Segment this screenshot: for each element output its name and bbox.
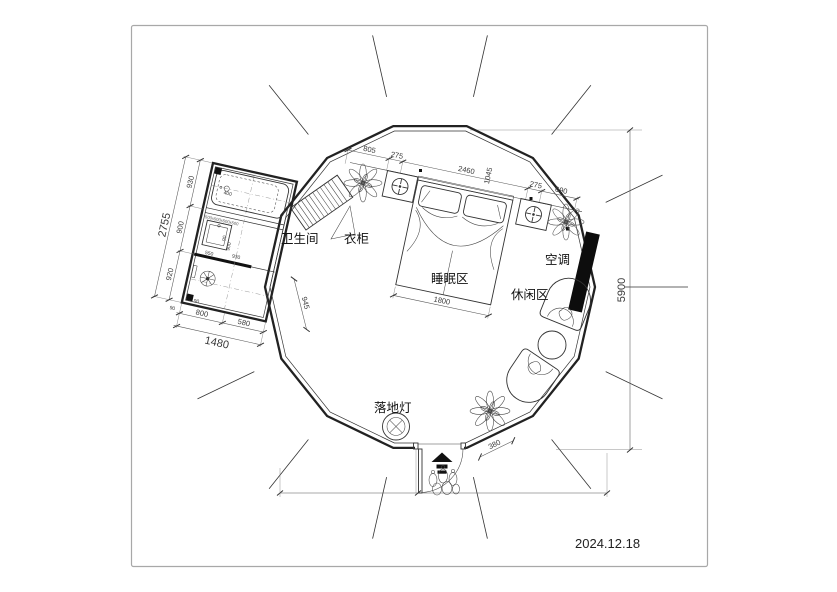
dim-inner-width: 930 — [231, 253, 241, 261]
ac-unit — [568, 231, 600, 312]
ac-label: 空调 — [545, 253, 570, 267]
pillow — [463, 195, 507, 224]
sleeping-area-label: 睡眠区 — [431, 272, 469, 286]
entry-arrow-icon — [432, 453, 453, 474]
door-leaf — [419, 449, 423, 493]
floor-plan-drawing: 5900 — [0, 0, 837, 592]
nightstand — [382, 171, 418, 203]
floor-drain — [199, 270, 217, 288]
floor-plan-page: 5900 — [0, 0, 837, 592]
dim-stub-inner: 90 — [221, 235, 228, 242]
dim-945: 945 — [300, 296, 312, 310]
roof-ray — [552, 85, 591, 134]
entrance: 380 — [414, 431, 518, 495]
dim-2460: 2460 — [457, 164, 475, 176]
room-inner-wall — [270, 131, 590, 443]
roof-ray — [373, 35, 387, 97]
pillow — [418, 185, 462, 214]
dim-5900: 5900 — [616, 278, 628, 302]
roof-ray — [373, 477, 387, 538]
column — [186, 294, 194, 302]
roof-ray — [606, 372, 663, 399]
dimension-overall-height: 5900 — [470, 128, 642, 453]
nightstand — [516, 199, 552, 231]
dim-1045: 1045 — [482, 167, 494, 185]
floor-lamp-symbol — [383, 413, 410, 440]
duvet-folds — [400, 206, 504, 304]
bathroom-label: 卫生间 — [281, 232, 319, 246]
drawing-date: 2024.12.18 — [575, 536, 640, 551]
room-outer-wall — [265, 126, 595, 448]
wardrobe-label: 衣柜 — [344, 231, 369, 246]
dim-1800: 1800 — [433, 294, 451, 306]
round-table — [538, 331, 566, 359]
dim-inner-height: 900 — [225, 242, 233, 252]
roof-ray — [552, 440, 591, 489]
roof-ray — [473, 35, 487, 97]
dim-tub: 400 — [223, 190, 233, 198]
leisure-area-label: 休闲区 — [511, 288, 549, 302]
roof-ray — [473, 477, 487, 538]
roof-ray — [269, 440, 308, 489]
armchair — [498, 347, 561, 411]
wall-socket — [419, 169, 422, 172]
dim-2755: 2755 — [156, 212, 173, 239]
entrance-plants — [429, 465, 460, 495]
floor-lamp-label: 落地灯 — [374, 401, 412, 415]
wall-socket — [530, 197, 533, 200]
column — [214, 167, 222, 175]
roof-rays — [198, 35, 689, 538]
faucet — [218, 224, 221, 227]
dim-drain-offset: 90 — [193, 298, 200, 305]
dimension-edge-945: 945 — [291, 274, 317, 333]
roof-ray — [606, 175, 663, 202]
dim-380: 380 — [487, 438, 502, 452]
dim-stub: 90 — [169, 305, 176, 312]
plant — [344, 164, 382, 202]
bed: 1800 — [390, 175, 517, 319]
bathroom-partition-wall — [194, 254, 251, 267]
dimension-bathroom-left: 930 900 920 2755 — [143, 152, 215, 305]
bathroom-annex: 400 500x500x500x500 550 930 900 90 90 — [135, 152, 300, 359]
plant — [470, 391, 510, 431]
roof-ray — [269, 85, 308, 134]
roof-ray — [198, 372, 255, 399]
plant — [548, 204, 584, 240]
